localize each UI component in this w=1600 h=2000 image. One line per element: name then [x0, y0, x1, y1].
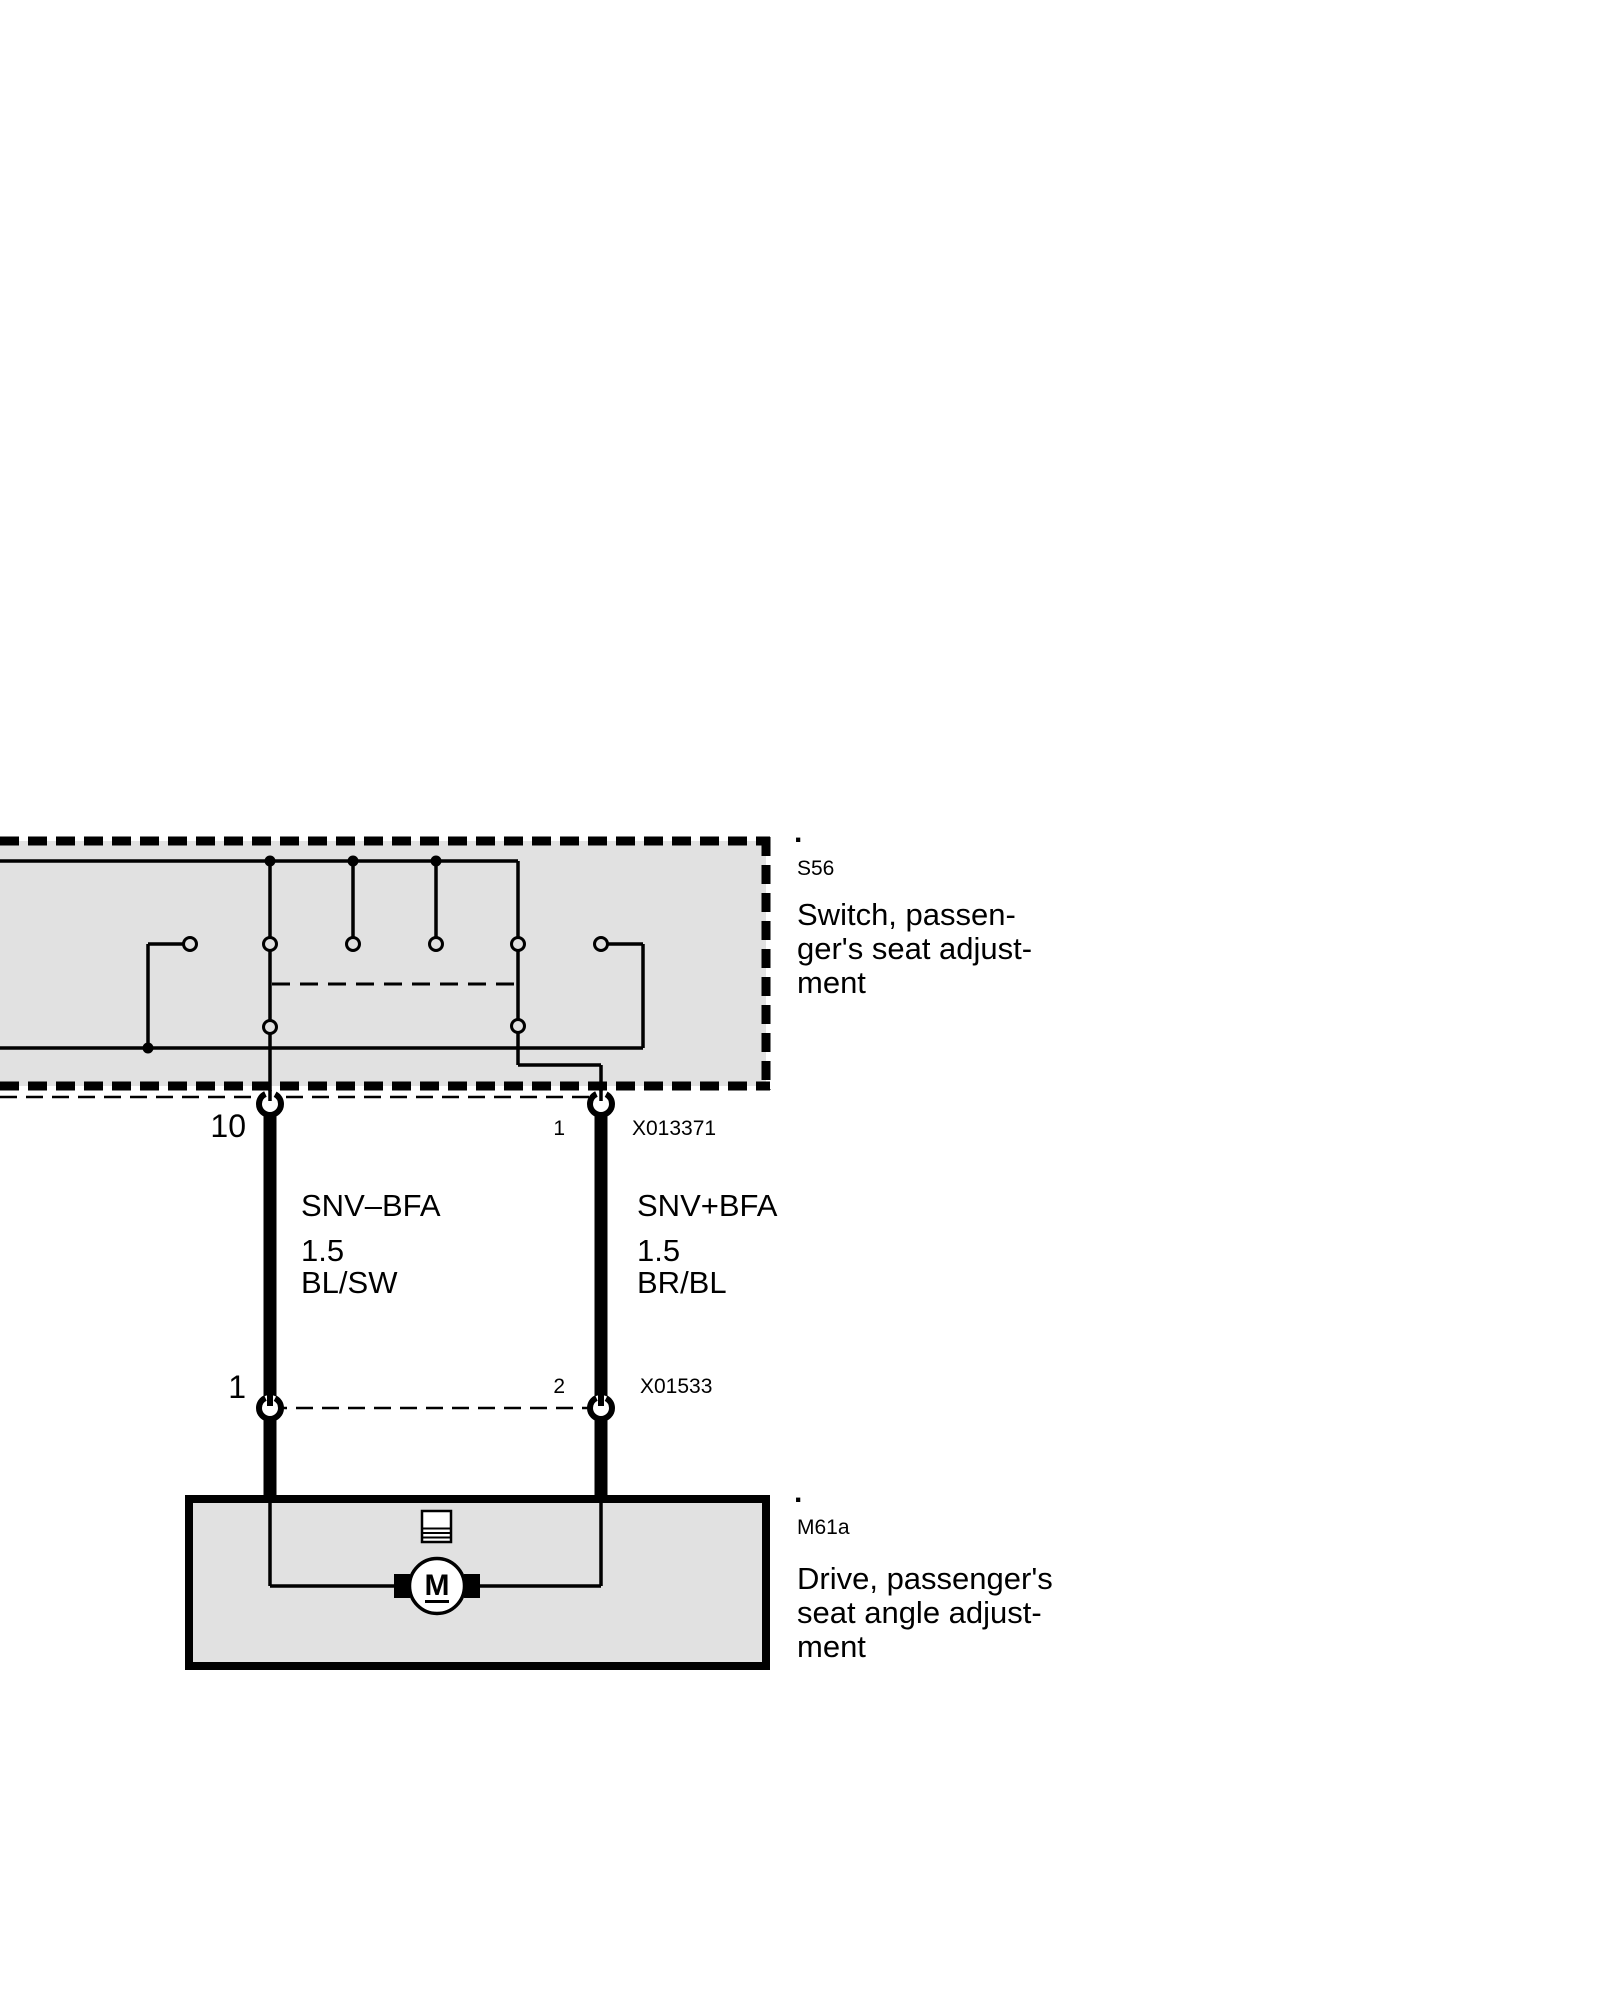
motor-letter-underline: [425, 1600, 449, 1603]
wire-left-name: SNV–BFA: [301, 1189, 441, 1223]
switch-label-line2: ger's seat adjust-: [797, 932, 1032, 966]
socket-x013371-pin10: [257, 1090, 283, 1117]
lower-connector-left-pin: 1: [190, 1371, 246, 1403]
upper-connector-code: X013371: [632, 1118, 716, 1139]
motor-letter: M: [412, 1571, 462, 1601]
motor-box: [189, 1499, 766, 1666]
thermal-protector-symbol: [422, 1511, 451, 1542]
motor-label-line2: seat angle adjust-: [797, 1596, 1042, 1630]
switch-label-line3: ment: [797, 966, 866, 1000]
motor-ref-dot: .: [794, 1478, 802, 1508]
switch-label-line1: Switch, passen-: [797, 898, 1016, 932]
socket-x01533-pin2: [588, 1394, 614, 1421]
upper-connector-right-pin: 1: [505, 1118, 565, 1139]
socket-x01533-pin1: [257, 1394, 283, 1421]
motor-code: M61a: [797, 1517, 850, 1539]
wire-left-color: BL/SW: [301, 1266, 397, 1300]
switch-code: S56: [797, 858, 834, 880]
wiring-diagram: . S56 Switch, passen- ger's seat adjust-…: [0, 0, 1600, 2000]
motor-brush-left: [394, 1574, 410, 1598]
switch-box: [0, 837, 770, 1090]
lower-connector-right-pin: 2: [505, 1376, 565, 1397]
upper-connector-left-pin: 10: [190, 1110, 246, 1142]
socket-x013371-pin1: [588, 1090, 614, 1117]
lower-connector-code: X01533: [640, 1376, 712, 1397]
wire-right-name: SNV+BFA: [637, 1189, 777, 1223]
wire-right-color: BR/BL: [637, 1266, 727, 1300]
schematic-artwork: [0, 0, 1600, 2000]
harness-wires: [270, 1106, 601, 1501]
switch-ref-dot: .: [794, 818, 802, 848]
wire-right-size: 1.5: [637, 1234, 680, 1268]
wire-left-size: 1.5: [301, 1234, 344, 1268]
motor-label-line1: Drive, passenger's: [797, 1562, 1053, 1596]
motor-brush-right: [464, 1574, 480, 1598]
motor-label-line3: ment: [797, 1630, 866, 1664]
